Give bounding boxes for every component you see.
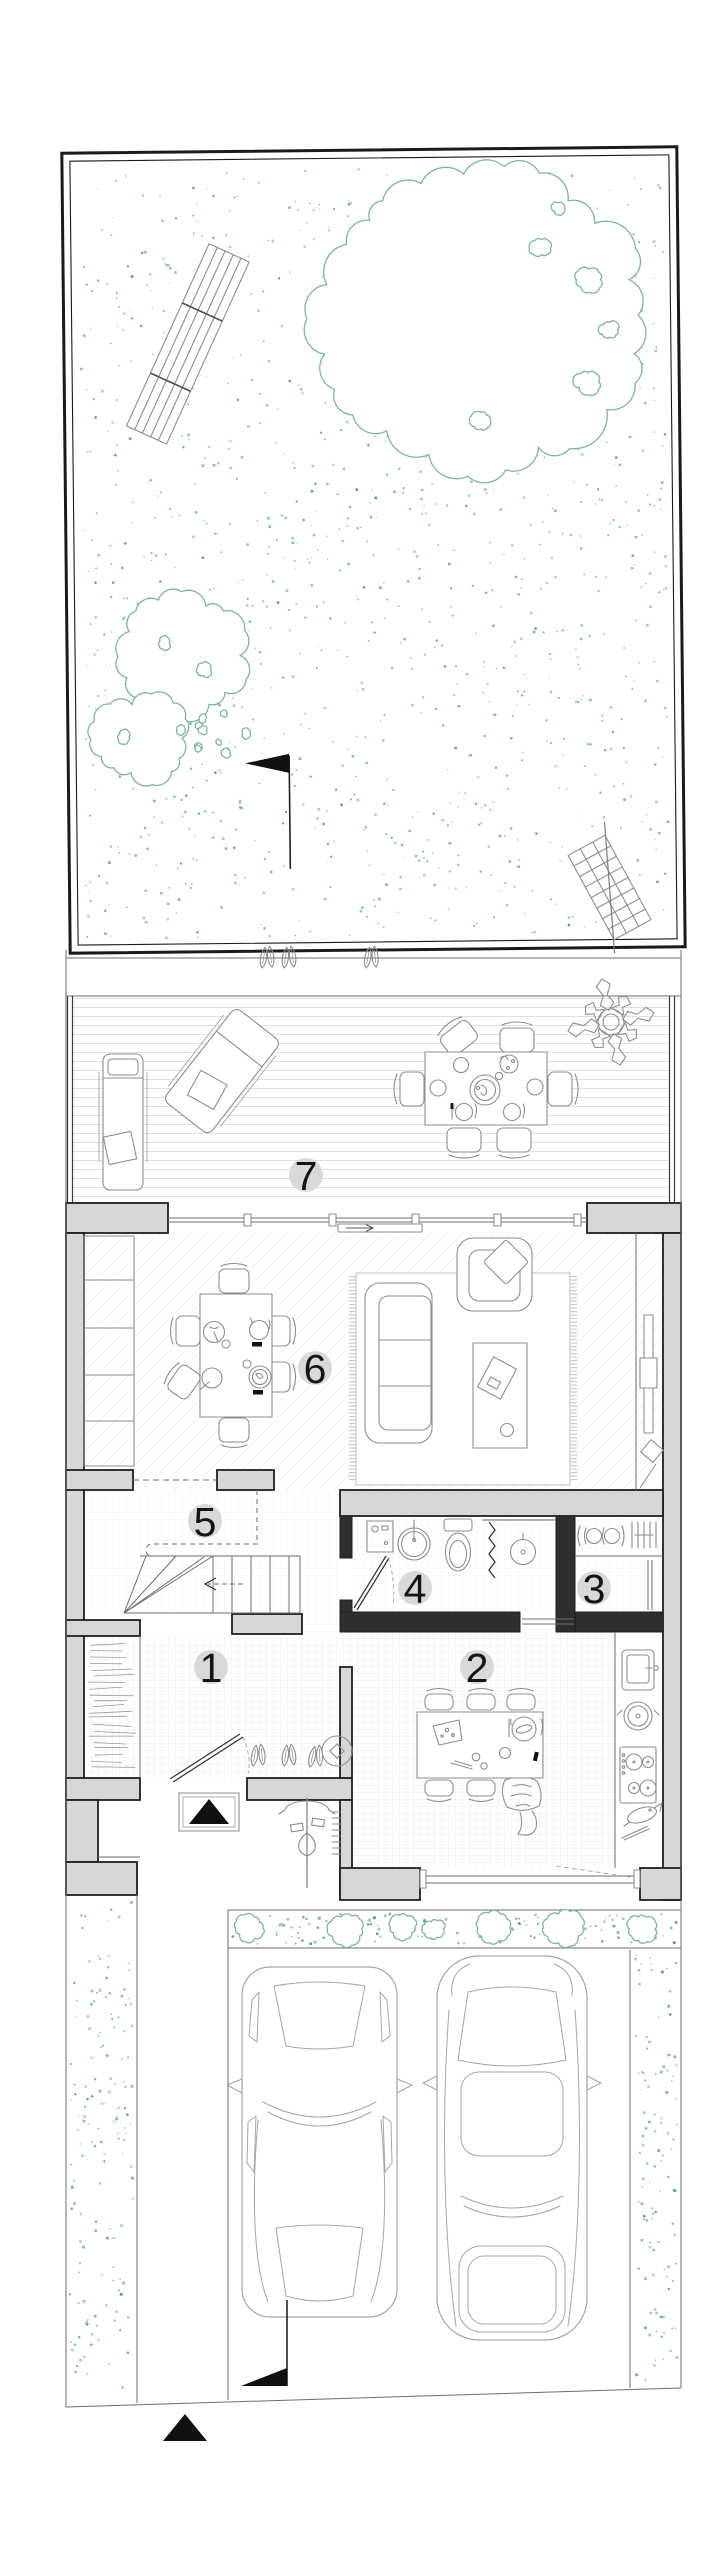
floor-plan-drawing: 7: [0, 0, 720, 2560]
hob-icon: [620, 1747, 656, 1803]
walkway-edges: [137, 1895, 228, 2403]
wood-deck-floor: [73, 996, 669, 1203]
entrance-mat-icon: [179, 1793, 239, 1831]
pot-icon: [617, 1702, 659, 1730]
room-number-7: 7: [295, 1153, 318, 1199]
terrace: 7: [68, 978, 675, 1203]
left-green-strip: [69, 1901, 134, 2389]
toilet-icon: [444, 1519, 472, 1571]
sun-lounger-icon: [99, 1054, 147, 1190]
sofa-icon: [365, 1283, 432, 1443]
room-number-3: 3: [583, 1566, 606, 1612]
right-green-strip: [634, 1955, 679, 2382]
kitchen-sink-icon: [622, 1650, 658, 1690]
sliding-glass-door: [168, 1214, 587, 1232]
bike-rack: [332, 1812, 340, 1854]
dining-table: [200, 1294, 272, 1417]
corridor-floor: [300, 1490, 340, 1632]
bicycle-icon: [279, 1798, 340, 1888]
car-icon: [423, 1956, 601, 2340]
hedge: [228, 1909, 681, 1948]
hedge-bush-icons: [234, 1909, 657, 1947]
floor-plan-sheet: 7: [0, 0, 720, 2560]
fish-cutting-board-icon: [622, 1803, 662, 1840]
room-number-1: 1: [200, 1645, 223, 1691]
stair-hall-floor: [84, 1490, 300, 1614]
room-number-4: 4: [404, 1566, 427, 1612]
garden: [62, 147, 685, 959]
room-number-5: 5: [194, 1499, 217, 1545]
entry-marker-triangle-icon: [163, 2414, 207, 2441]
armchair-icon: [457, 1238, 532, 1311]
site-bottom-boundary: [66, 2388, 681, 2407]
kitchen-window: [420, 1866, 640, 1888]
car-icon: [227, 1967, 412, 2317]
room-number-2: 2: [466, 1645, 489, 1691]
coffee-table-icon: [473, 1343, 527, 1448]
room-number-6: 6: [304, 1346, 327, 1392]
island-counter: [417, 1712, 543, 1778]
